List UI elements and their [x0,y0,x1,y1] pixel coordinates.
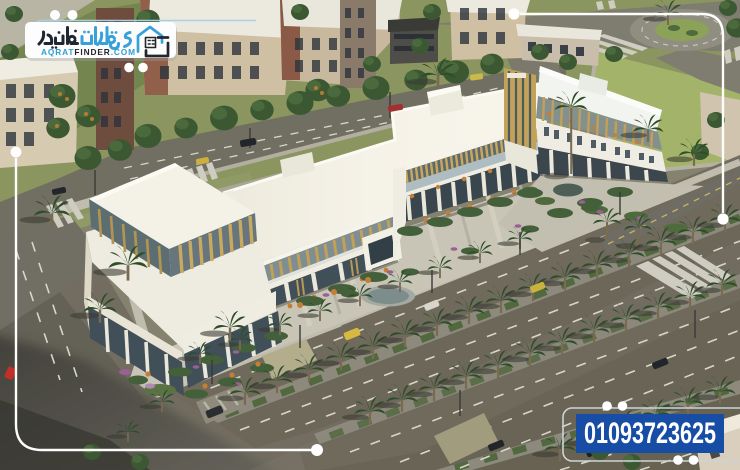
svg-text:AQRATFINDER.COM: AQRATFINDER.COM [41,47,136,57]
svg-text:01093723625: 01093723625 [584,417,716,450]
